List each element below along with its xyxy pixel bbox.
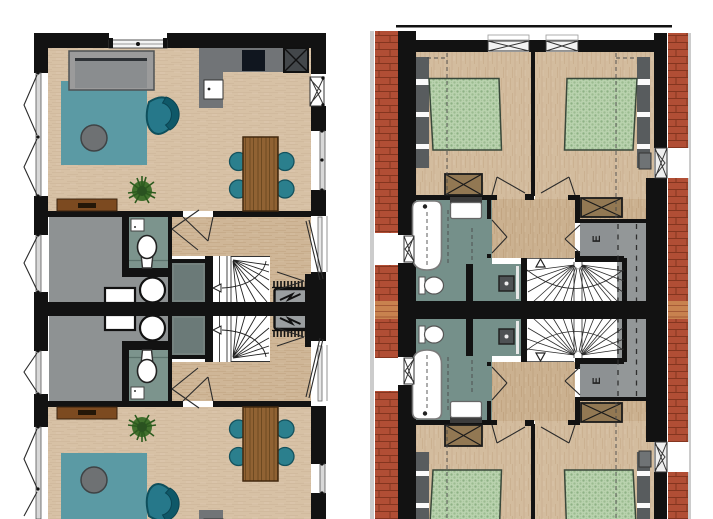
svg-text:E: E <box>591 235 603 242</box>
svg-text:E: E <box>591 377 603 384</box>
